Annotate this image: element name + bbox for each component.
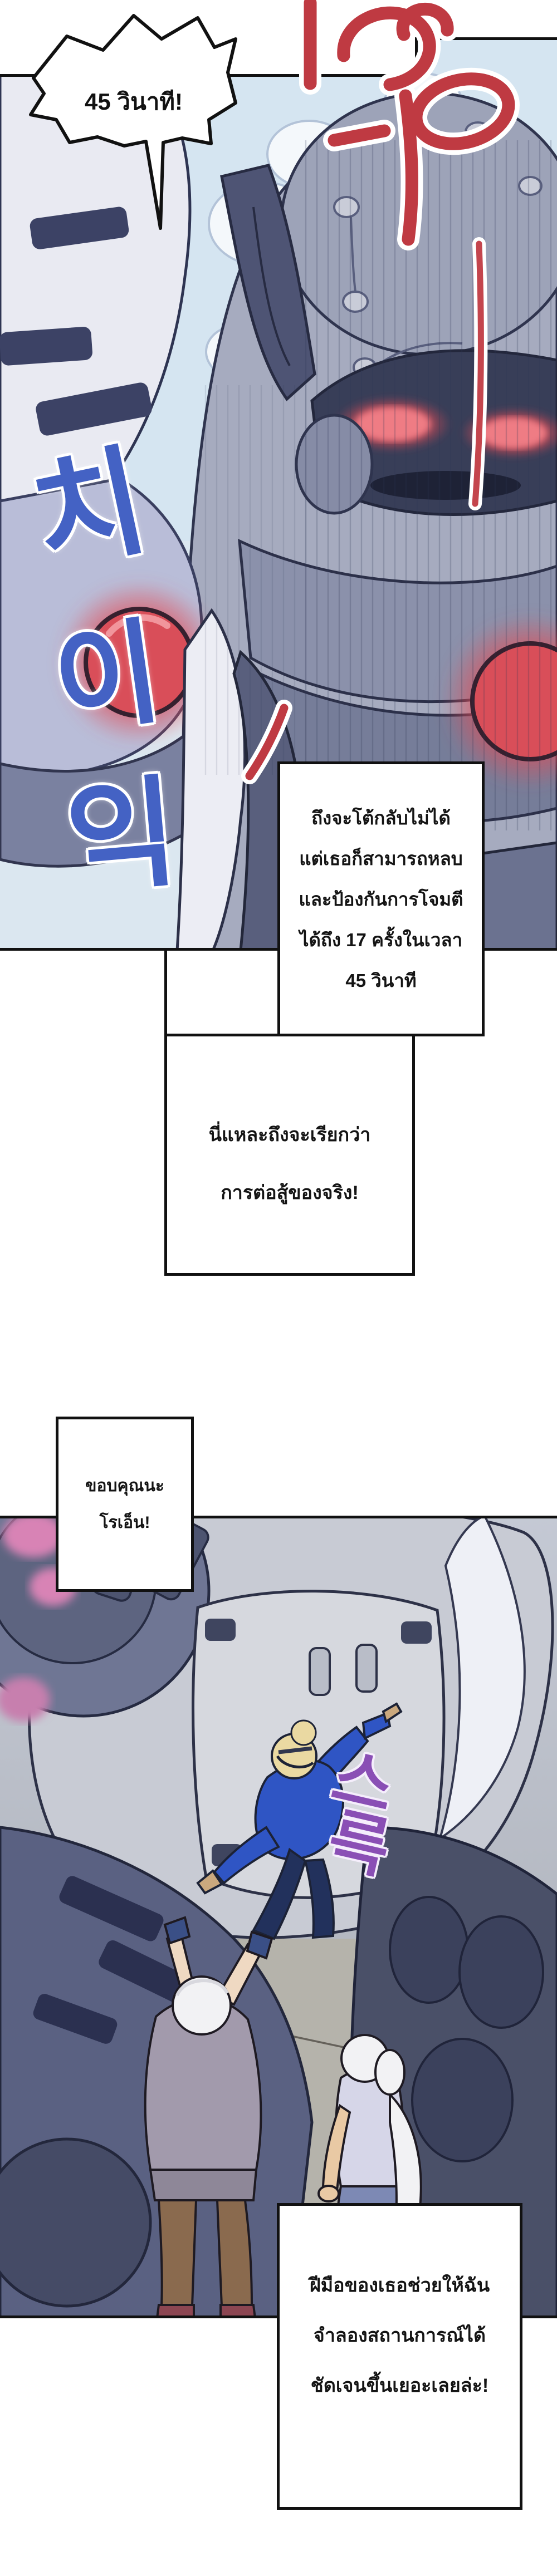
dialogue-line: โรเอ็น!	[100, 1505, 150, 1541]
dialogue-box-thanks: ขอบคุณนะ โรเอ็น!	[56, 1417, 194, 1592]
shout-bubble-text: 45 วินาที!	[45, 83, 223, 120]
dialogue-line: ชัดเจนขึ้นเยอะเลยล่ะ!	[311, 2361, 488, 2411]
dialogue-line: ได้ถึง 17 ครั้งในเวลา	[300, 920, 462, 960]
dialogue-box-simulation: ฝีมือของเธอช่วยให้ฉัน จำลองสถานการณ์ได้ …	[277, 2203, 522, 2510]
slide-sfx-char: 륵	[323, 1808, 395, 1880]
dialogue-line: 45 วินาที	[345, 960, 416, 1001]
panel-fallen-robot-illustration	[0, 1516, 557, 2318]
dialogue-line: แต่เธอก็สามารถหลบ	[299, 838, 463, 879]
dialogue-box-counter: ถึงจะโต้กลับไม่ได้ แต่เธอก็สามารถหลบ และ…	[277, 761, 485, 1036]
dialogue-line: นี่แหละถึงจะเรียกว่า	[209, 1106, 371, 1164]
shout-bubble	[14, 6, 253, 239]
dialogue-line: และป้องกันการโจมตี	[299, 879, 463, 920]
dialogue-line: การต่อสู้ของจริง!	[221, 1164, 359, 1222]
dialogue-line: ขอบคุณนะ	[85, 1468, 164, 1505]
dialogue-line: ถึงจะโต้กลับไม่ได้	[311, 798, 451, 838]
dialogue-line: จำลองสถานการณ์ได้	[314, 2310, 486, 2361]
dialogue-box2-top-border-segment	[164, 1034, 280, 1036]
manhwa-page: 치 이 익 45 วินาที! ถึงจะโต้กลับไม่ได้ แต่เ…	[0, 0, 557, 2576]
dialogue-line: ฝีมือของเธอช่วยให้ฉัน	[310, 2260, 490, 2310]
hiss-sfx-char-3: 익	[58, 735, 183, 917]
